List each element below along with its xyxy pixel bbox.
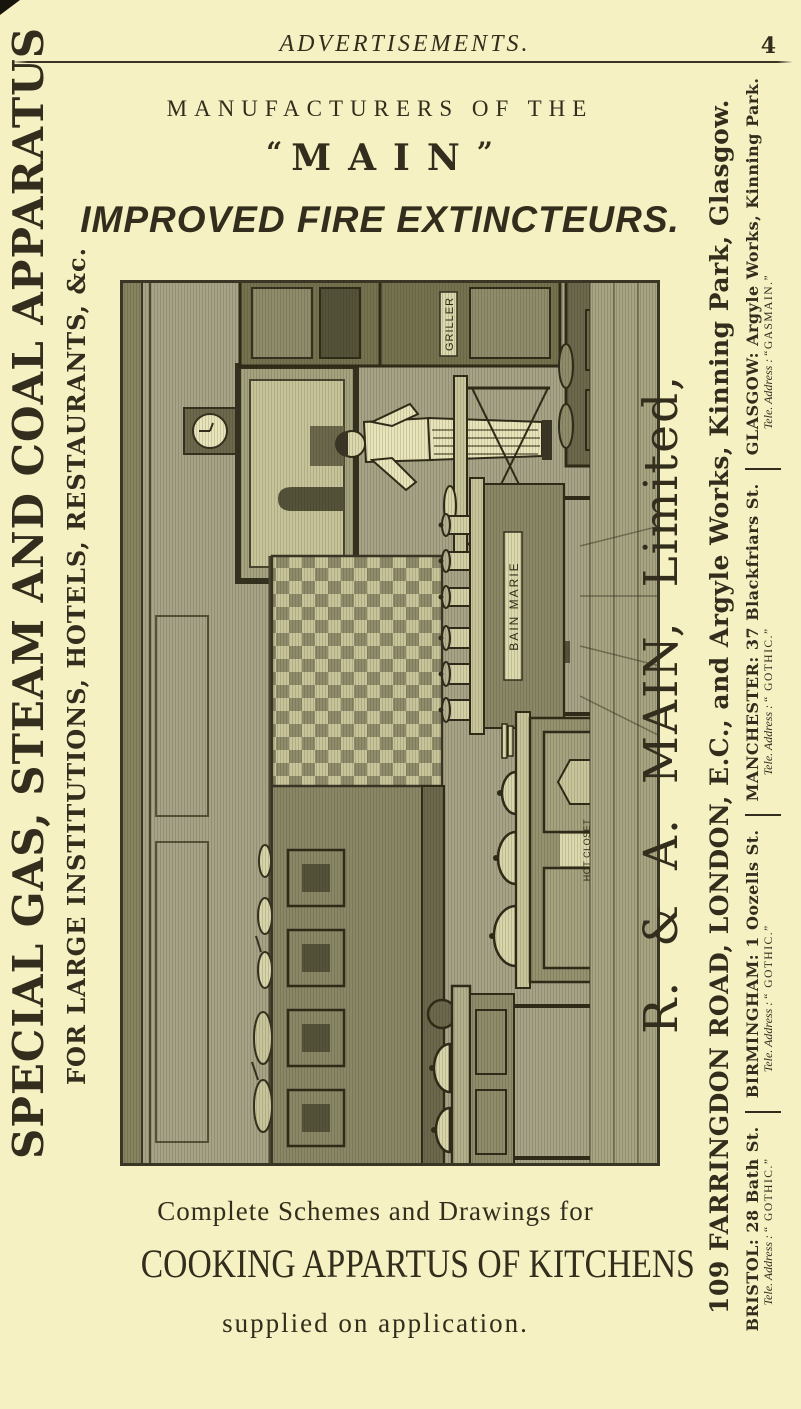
branch-telegraph: Tele. Address : “ GOTHIC.” [762, 1126, 776, 1331]
branch-telegraph: Tele. Address : “GASMAIN.” [762, 77, 776, 455]
running-header: ADVERTISEMENTS. [150, 31, 660, 58]
close-quote: ” [477, 136, 494, 169]
company-name: R. & A. MAIN, Limited, [626, 119, 698, 1289]
footer-line2: COOKING APPARTUS OF KITCHENS [88, 1240, 663, 1287]
masthead-intro: MANUFACTURERS OF THE [150, 96, 610, 122]
branch-divider [745, 1111, 781, 1113]
tele-value: “ GOTHIC.” [763, 1158, 775, 1232]
tele-label: Tele. Address : [761, 1002, 775, 1073]
branch-address: BIRMINGHAM: 1 Oozells St. [744, 829, 762, 1098]
open-quote: “ [266, 136, 283, 169]
branch-telegraph: Tele. Address : “ GOTHIC.” [762, 829, 776, 1098]
brand-title: “MAIN” [150, 136, 610, 179]
branch-birmingham: BIRMINGHAM: 1 Oozells St. Tele. Address … [744, 829, 777, 1098]
branch-glasgow: GLASGOW: Argyle Works, Kinning Park. Tel… [744, 77, 777, 455]
branch-address: MANCHESTER: 37 Blackfriars St. [744, 483, 762, 801]
branch-address: BRISTOL: 28 Bath St. [744, 1126, 762, 1331]
footer-line1: Complete Schemes and Drawings for [88, 1196, 663, 1227]
branch-offices: BRISTOL: 28 Bath St. Tele. Address : “ G… [744, 0, 781, 1409]
brand-name: MAIN [291, 137, 477, 179]
footer-line2-text: COOKING APPARTUS OF KITCHENS [141, 1240, 695, 1287]
kitchen-engraving-svg: GRILLER [120, 280, 660, 1166]
kitchen-engraving: GRILLER [120, 280, 660, 1166]
branch-address: GLASGOW: Argyle Works, Kinning Park. [744, 77, 762, 455]
branch-manchester: MANCHESTER: 37 Blackfriars St. Tele. Add… [744, 483, 777, 801]
left-margin-line2: FOR LARGE INSTITUTIONS, HOTELS, RESTAURA… [57, 223, 97, 1109]
branch-bristol: BRISTOL: 28 Bath St. Tele. Address : “ G… [744, 1126, 777, 1331]
tele-label: Tele. Address : [761, 705, 775, 776]
advertisement-page: ADVERTISEMENTS. 4 MANUFACTURERS OF THE “… [0, 0, 801, 1409]
left-margin-line1: SPECIAL GAS, STEAM AND COAL APPARATUS [0, 94, 57, 1159]
company-addresses: 109 FARRINGDON ROAD, LONDON, E.C., and A… [698, 29, 742, 1384]
tele-value: “GASMAIN.” [763, 274, 775, 356]
footer-line3: supplied on application. [88, 1308, 663, 1339]
product-title: IMPROVED FIRE EXTINCTEURS. [70, 199, 690, 241]
branch-telegraph: Tele. Address : “ GOTHIC.” [762, 483, 776, 801]
tele-value: “ GOTHIC.” [763, 627, 775, 701]
tele-value: “ GOTHIC.” [763, 924, 775, 998]
tele-label: Tele. Address : [761, 1235, 775, 1306]
left-margin-column: SPECIAL GAS, STEAM AND COAL APPARATUS FO… [0, 0, 100, 1409]
branch-divider [745, 814, 781, 816]
branch-divider [745, 468, 781, 470]
tele-label: Tele. Address : [761, 359, 775, 430]
